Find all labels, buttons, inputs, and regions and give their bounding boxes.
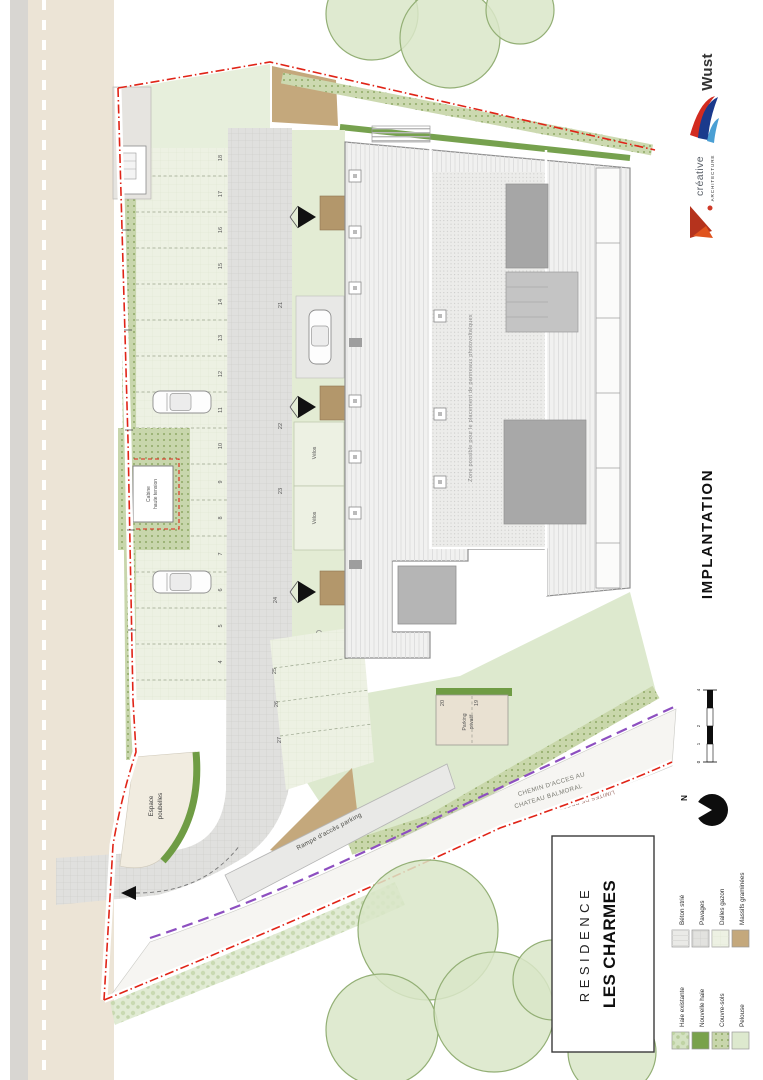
stall-number: 20 [440, 700, 446, 706]
wust-logo-text: Wust [699, 53, 716, 91]
legend-label: Pavages [699, 900, 706, 925]
legend-swatch [732, 930, 749, 947]
cabin-label: haute tension [153, 479, 159, 509]
stall-number: 17 [218, 191, 224, 197]
legend-swatch-texture [672, 1032, 689, 1049]
stall-number: 26 [274, 701, 280, 707]
legend: Béton strié Pavages Dalles gazon Massifs… [672, 873, 749, 1050]
car-icon [309, 310, 331, 364]
stall-number: 27 [277, 737, 283, 743]
bike-stall-label: Vélos [312, 446, 318, 459]
annex-roof [398, 566, 456, 624]
stall-number: 11 [218, 407, 224, 413]
car-icon [153, 571, 211, 593]
legend-item-haie-existante: Haie existante [672, 987, 689, 1049]
stall-number: 5 [218, 624, 224, 627]
massif-top [272, 66, 338, 126]
stall-number: 21 [278, 302, 284, 308]
tree [326, 974, 438, 1080]
stall-number: 7 [218, 552, 224, 555]
legend-label: Pelouse [739, 1004, 746, 1027]
tree [400, 0, 500, 88]
stall-number: 24 [273, 597, 279, 603]
stall-number: 12 [218, 371, 224, 377]
private-parking: 20 19 Parking privatif [436, 688, 512, 745]
street-verge [10, 0, 28, 1080]
legend-item-beton-strie: Béton strié [672, 894, 689, 947]
scale-label: 0 [696, 760, 701, 763]
balcony-strip [596, 168, 620, 588]
legend-label: Massifs graminées [739, 873, 746, 926]
scale-label: 2 [696, 724, 701, 727]
flat-roof [506, 184, 548, 268]
stall-number: 18 [218, 155, 224, 161]
street [10, 0, 114, 1080]
legend-item-couvre-sols: Couvre-sols [712, 993, 729, 1049]
legend-item-dalles-gazon: Dalles gazon [712, 888, 729, 947]
legend-item-pelouse: Pelouse [732, 1004, 749, 1049]
stall-number: 9 [218, 480, 224, 483]
stall-number: 25 [272, 668, 278, 674]
legend-swatch [692, 1032, 709, 1049]
car-icon [153, 391, 211, 413]
grate-strip [372, 126, 430, 142]
grass-paver-grid [136, 148, 228, 700]
bike-stall [294, 486, 344, 550]
stall-number: 23 [278, 488, 284, 494]
north-label: N [680, 795, 689, 801]
legend-label: Nouvelle haie [699, 988, 706, 1027]
legend-item-massifs: Massifs graminées [732, 873, 749, 948]
building: Zone possible pour le placement de panne… [345, 126, 630, 658]
legend-label: Couvre-sols [719, 993, 726, 1027]
legend-swatch-texture [672, 930, 689, 947]
project-name: LES CHARMES [600, 880, 619, 1008]
site-plan-sheet: 18 17 16 15 14 13 12 11 10 9 8 7 6 5 4 [0, 0, 763, 1080]
title-block: RESIDENCE LES CHARMES [552, 836, 654, 1052]
stall-number: 4 [218, 660, 224, 663]
stall-number: 6 [218, 588, 224, 591]
bike-stall [294, 422, 344, 486]
scale-bar: 0 1 2 4 [696, 688, 717, 763]
private-parking-label: privatif [469, 714, 475, 729]
stall-number: 8 [218, 516, 224, 519]
scale-label: 4 [696, 688, 701, 691]
street-surface [28, 0, 114, 1080]
parking-row-left: 18 17 16 15 14 13 12 11 10 9 8 7 6 5 4 [136, 148, 228, 700]
stall-number: 13 [218, 335, 224, 341]
cabin-label: Cabine [146, 486, 152, 502]
legend-swatch-texture [712, 930, 729, 947]
north-arrow: N [680, 794, 728, 826]
stall-number: 19 [474, 700, 480, 706]
stall-number: 14 [218, 299, 224, 305]
legend-label: Dalles gazon [719, 888, 726, 925]
project-title: RESIDENCE [577, 886, 592, 1002]
architecture-logo-text: ARCHITECTURE [710, 155, 715, 202]
waste-label: poubelles [157, 793, 164, 820]
legend-label: Béton strié [679, 894, 686, 925]
legend-label: Haie existante [679, 987, 686, 1027]
chimney [349, 560, 362, 569]
bike-stall-label: Vélos [312, 511, 318, 524]
creative-architecture-logo: créative ARCHITECTURE [690, 155, 715, 238]
pv-zone-label: Zone possible pour le placement de panne… [468, 314, 474, 482]
wust-logo: Wust [690, 53, 719, 143]
stall-number: 10 [218, 443, 224, 449]
waste-label: Espace [148, 795, 155, 816]
legend-swatch [732, 1032, 749, 1049]
creative-logo-dot [708, 206, 713, 211]
legend-swatch-texture [692, 930, 709, 947]
legend-swatch-texture [712, 1032, 729, 1049]
stall-number: 22 [278, 423, 284, 429]
stall-number: 16 [218, 227, 224, 233]
utility-box-inner [123, 153, 136, 179]
scale-label: 1 [696, 742, 701, 745]
flat-roof [504, 420, 586, 524]
sheet-title: IMPLANTATION [699, 469, 716, 599]
creative-logo-text: créative [694, 156, 706, 196]
stall-number: 15 [218, 263, 224, 269]
private-parking-label: Parking [462, 713, 468, 730]
legend-item-nouvelle-haie: Nouvelle haie [692, 988, 709, 1049]
legend-item-pavages: Pavages [692, 900, 709, 947]
chimney [349, 338, 362, 347]
